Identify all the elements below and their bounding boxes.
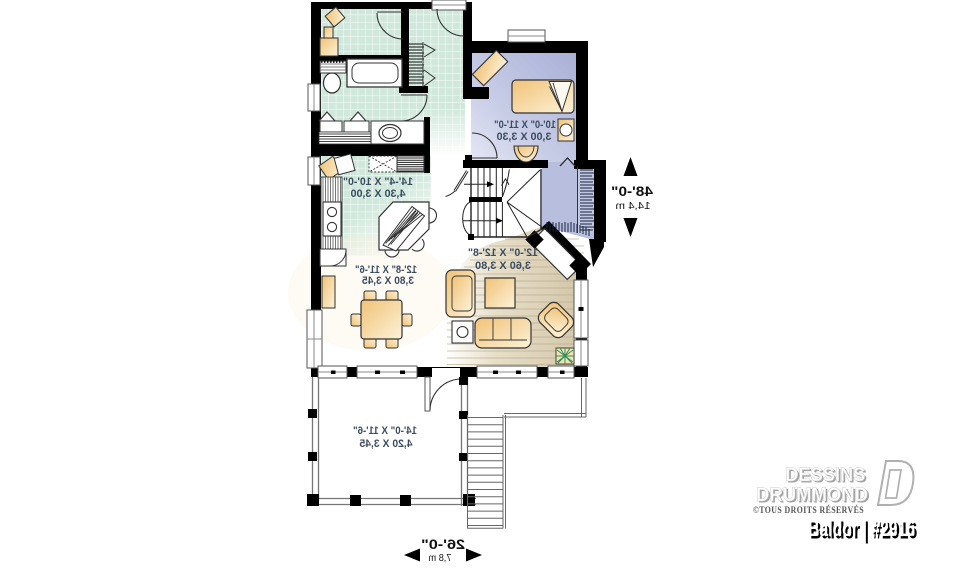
svg-text:7,8 m: 7,8 m (428, 552, 451, 564)
svg-text:DESSINS: DESSINS (785, 465, 865, 486)
svg-text:48'-0": 48'-0" (611, 184, 653, 199)
svg-text:14'-0" X 11'-6": 14'-0" X 11'-6" (353, 425, 417, 437)
svg-text:3,80 X 3,45: 3,80 X 3,45 (362, 275, 414, 287)
svg-text:12'-0" X 12'-8": 12'-0" X 12'-8" (468, 247, 538, 259)
svg-text:14,4 m: 14,4 m (615, 200, 650, 212)
svg-text:14'-4" X 10'-0": 14'-4" X 10'-0" (343, 176, 413, 188)
svg-text:DRUMMOND: DRUMMOND (756, 485, 868, 506)
svg-text:Baldor | #2916: Baldor | #2916 (808, 515, 915, 541)
svg-text:4,30 X 3,00: 4,30 X 3,00 (351, 188, 406, 200)
svg-text:4,20 X 3,45: 4,20 X 3,45 (360, 438, 413, 450)
svg-text:3,60 X 3,80: 3,60 X 3,80 (475, 260, 531, 272)
svg-text:10'-0" X 11'-0": 10'-0" X 11'-0" (494, 119, 556, 131)
svg-text:26'-0": 26'-0" (421, 537, 465, 552)
svg-text:3,00 X 3,30: 3,00 X 3,30 (497, 131, 552, 143)
